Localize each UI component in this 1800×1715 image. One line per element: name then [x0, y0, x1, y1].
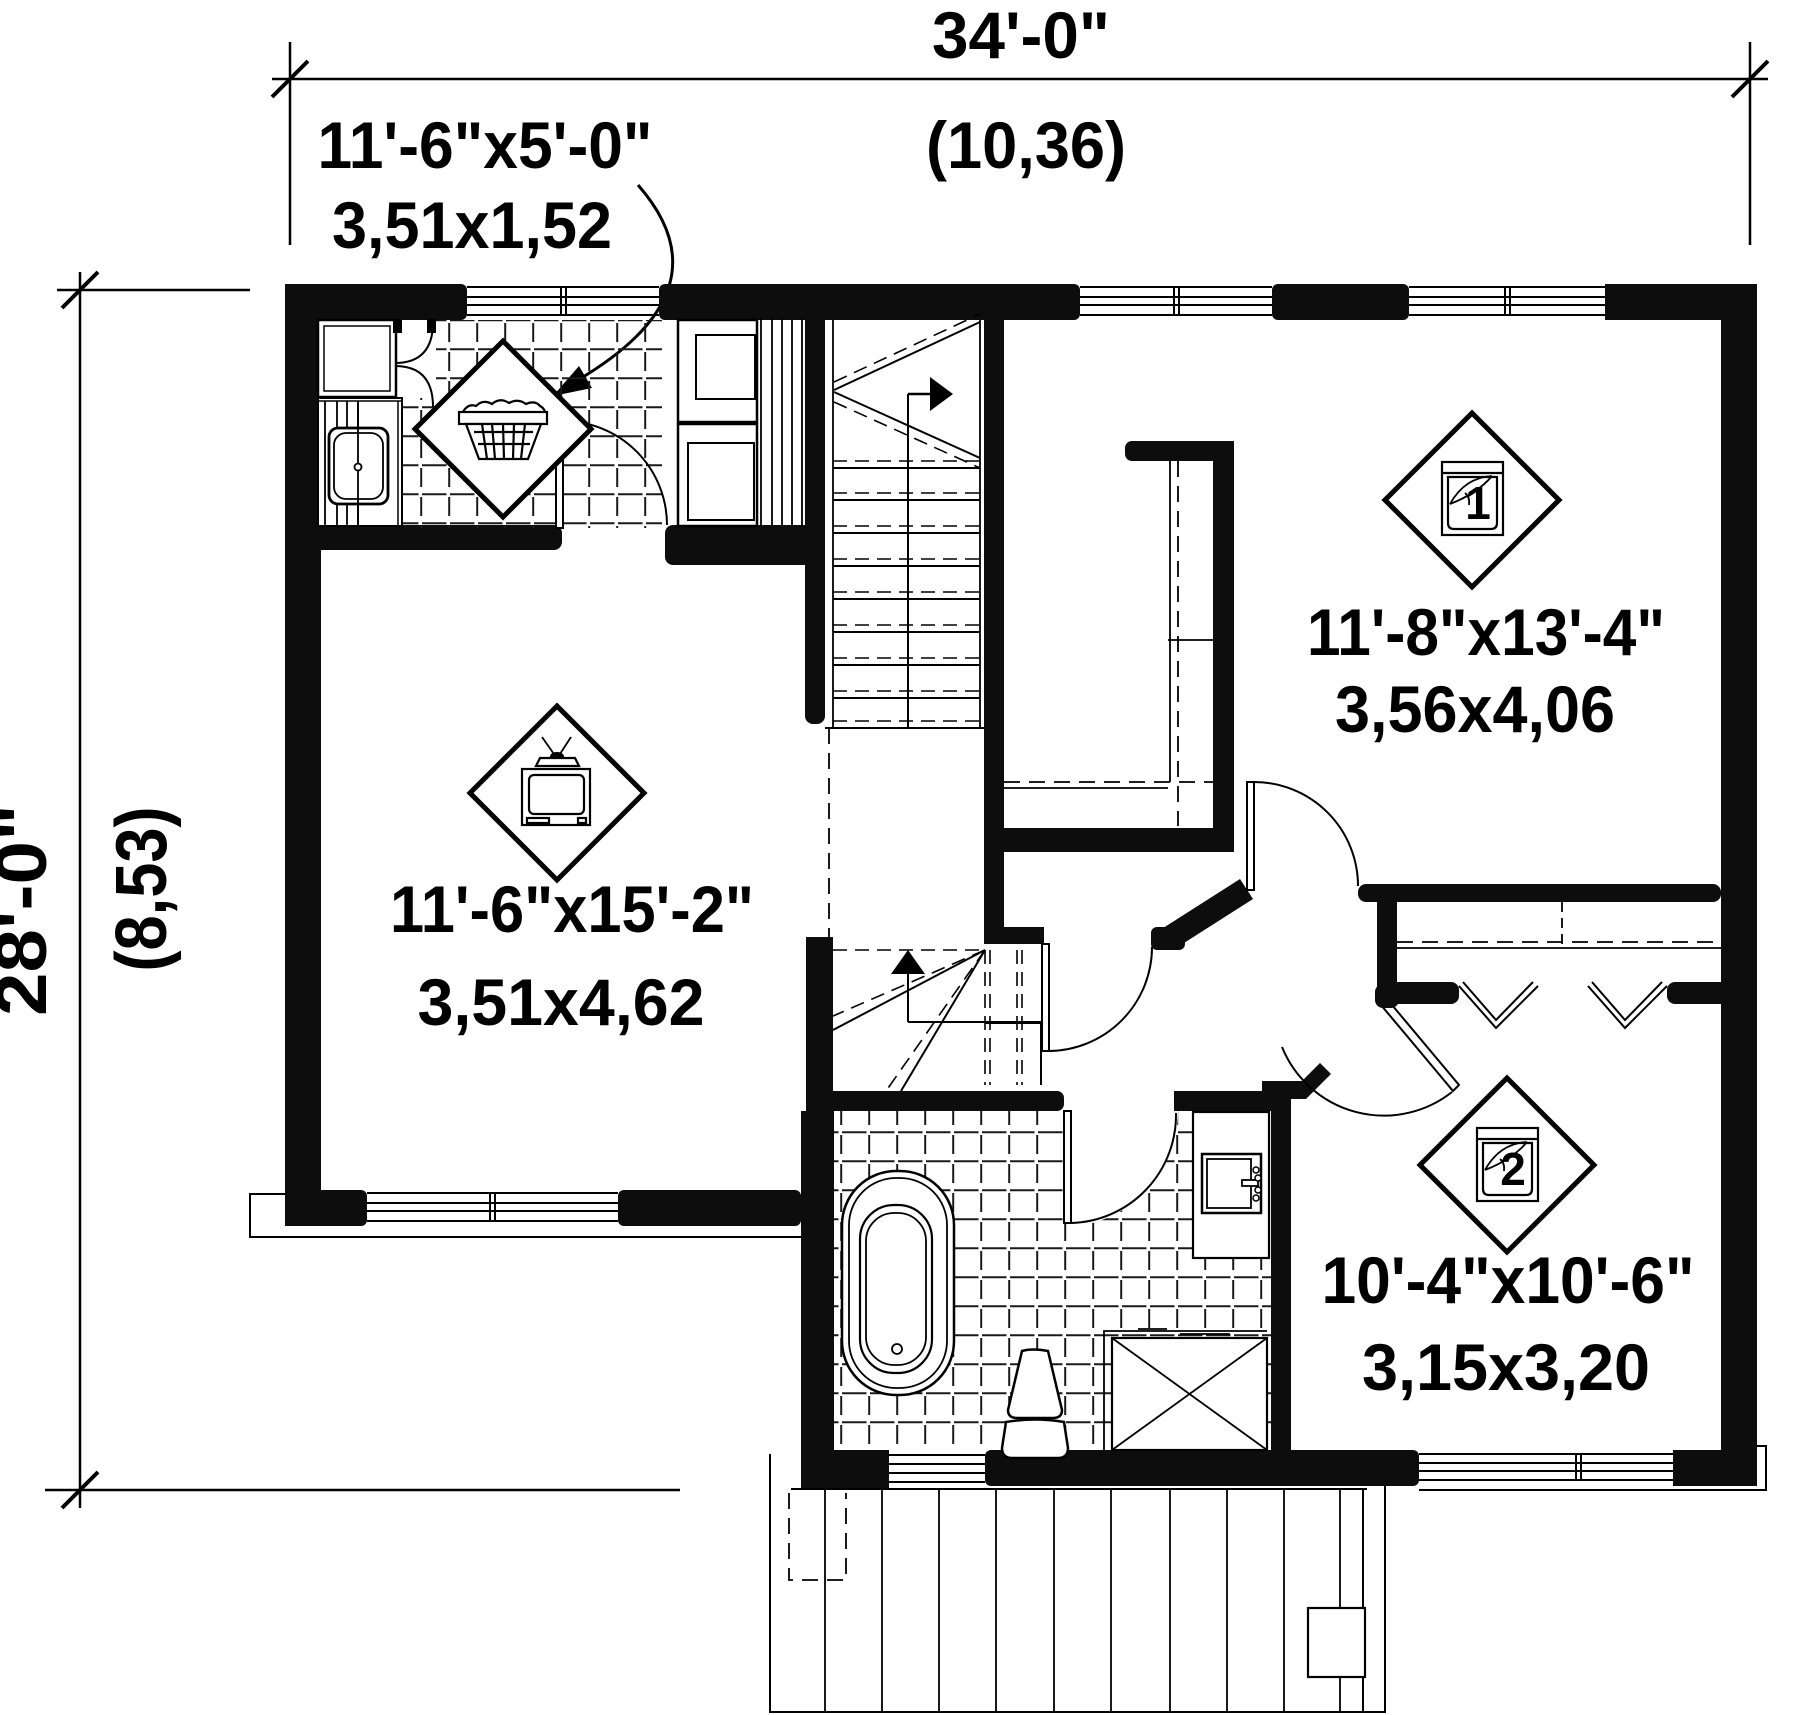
svg-text:10'-4"x10'-6": 10'-4"x10'-6": [1322, 1243, 1695, 1317]
svg-text:3,51x4,62: 3,51x4,62: [418, 965, 705, 1039]
svg-text:11'-6"x15'-2": 11'-6"x15'-2": [390, 872, 754, 946]
svg-text:34'-0": 34'-0": [932, 0, 1110, 72]
svg-text:28'-0": 28'-0": [0, 804, 62, 1016]
svg-text:1: 1: [1465, 477, 1491, 529]
svg-text:(8,53): (8,53): [102, 807, 182, 972]
svg-text:(10,36): (10,36): [926, 108, 1126, 182]
svg-text:2: 2: [1500, 1143, 1526, 1195]
svg-text:11'-6"x5'-0": 11'-6"x5'-0": [318, 108, 653, 182]
svg-text:11'-8"x13'-4": 11'-8"x13'-4": [1307, 595, 1665, 669]
svg-text:3,15x3,20: 3,15x3,20: [1362, 1330, 1650, 1404]
svg-text:3,56x4,06: 3,56x4,06: [1335, 672, 1615, 746]
svg-text:3,51x1,52: 3,51x1,52: [332, 188, 612, 262]
